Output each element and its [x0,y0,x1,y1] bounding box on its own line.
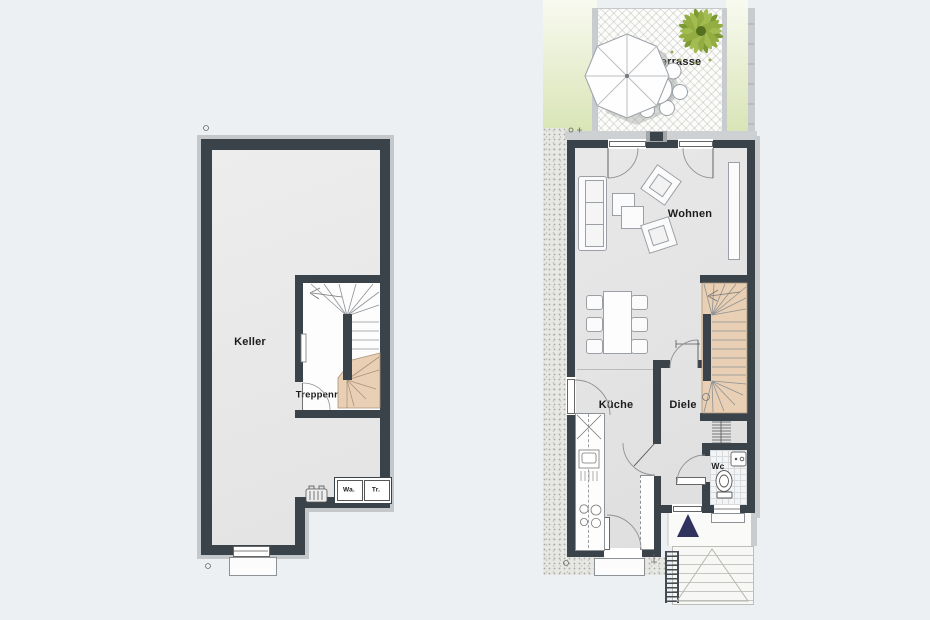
vector-overlay [0,0,930,620]
parasol-icon [585,34,669,118]
staircase-ground [676,283,747,413]
floorplan-canvas: Wa. Tr. Keller Treppenr. [0,0,930,620]
carport-outline [677,549,748,601]
door-pier [646,131,667,142]
radiator-icon [712,421,731,443]
terrace-set [585,8,724,125]
oven-icon [579,450,599,468]
plant-icon [671,8,725,65]
kitchen-appliances [577,415,601,528]
sink-icon [731,452,746,466]
sink-unit-icon [577,415,601,439]
toilet-icon [716,471,732,499]
entrance-arrow-icon [677,514,699,537]
appliance-icon [306,486,327,502]
door-swings [575,148,713,549]
cooktop-icon [580,505,601,528]
staircase-basement [301,284,380,410]
wc-fixtures [712,421,746,498]
dishwasher-icon [581,471,597,481]
